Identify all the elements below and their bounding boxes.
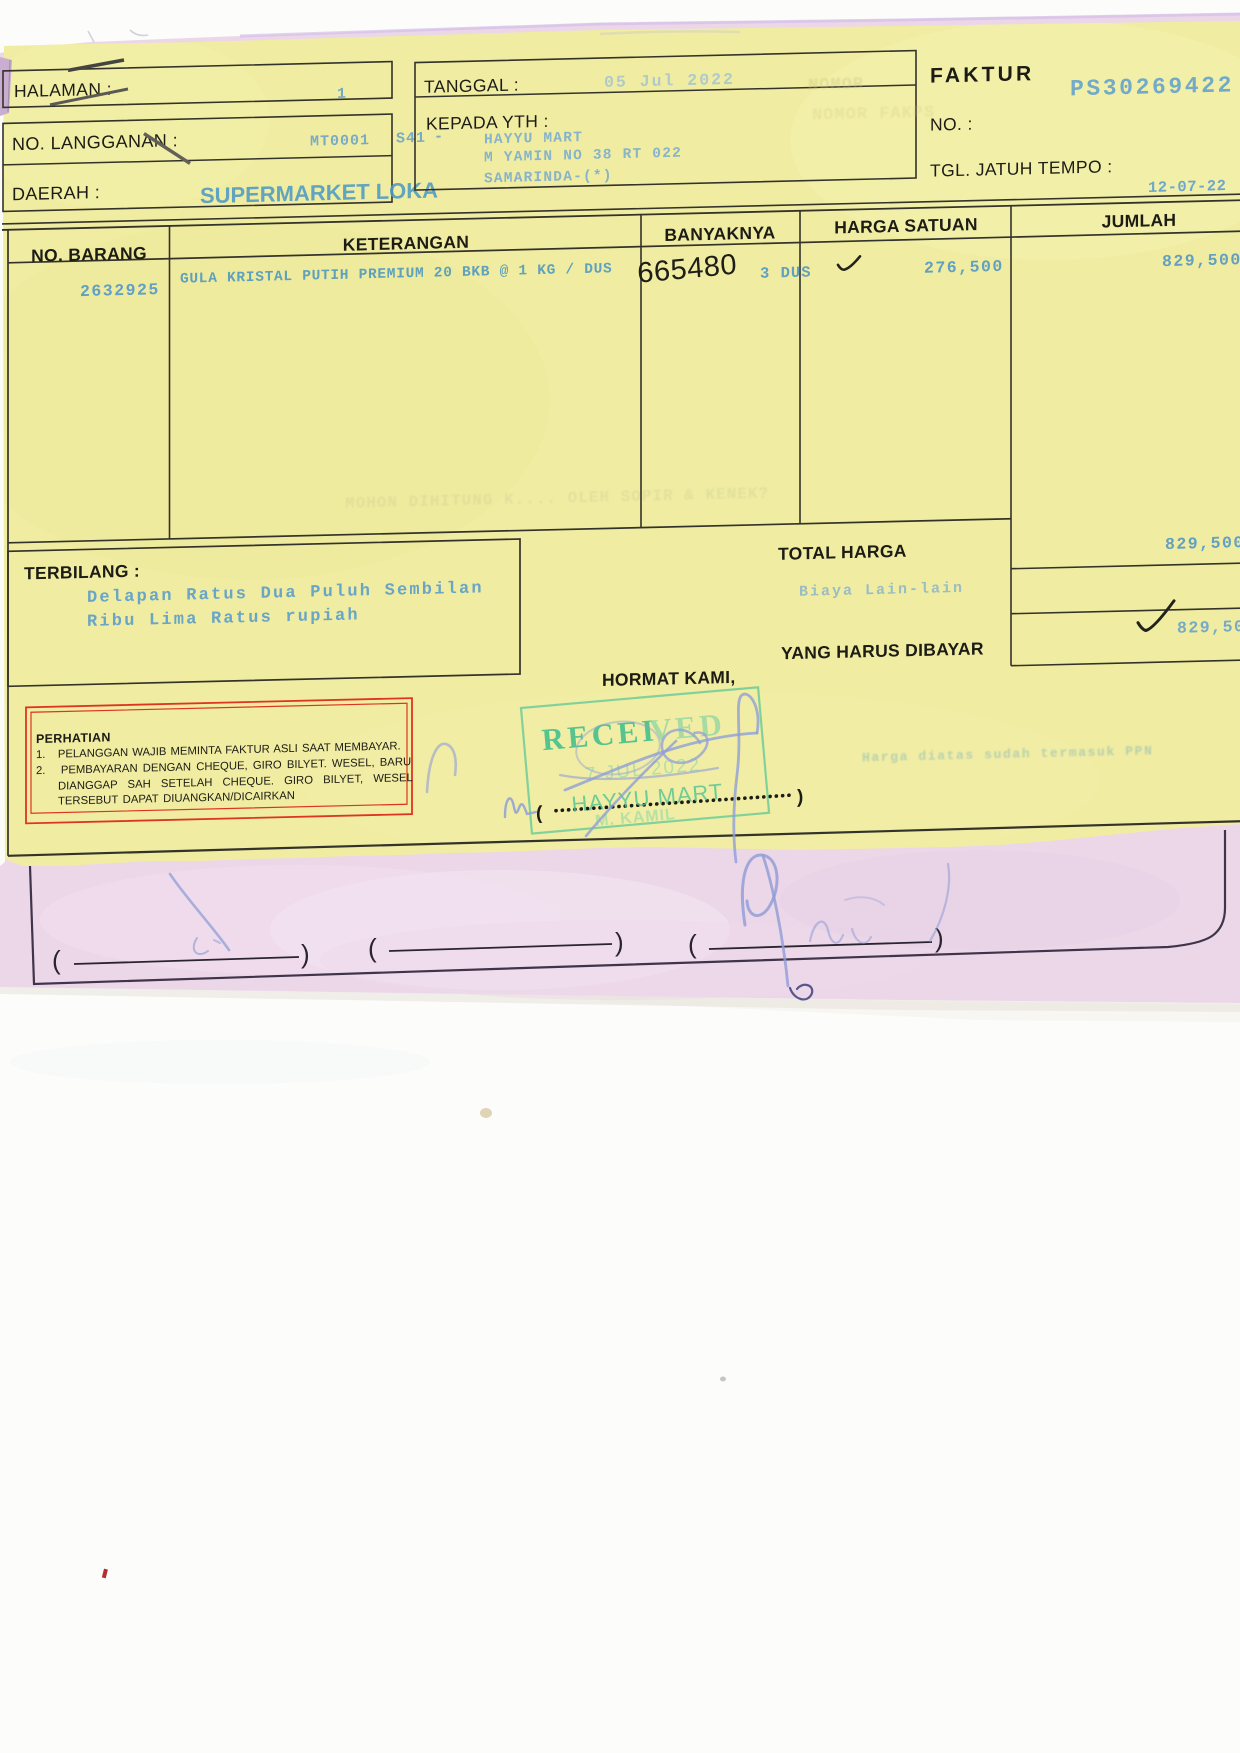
svg-text:NOMOR FAKPS: NOMOR FAKPS xyxy=(812,104,935,126)
svg-text:FAKTUR: FAKTUR xyxy=(930,62,1034,88)
svg-text:NOMOR: NOMOR xyxy=(808,75,864,95)
svg-text:TANGGAL :: TANGGAL : xyxy=(424,75,519,97)
svg-text:12-07-22: 12-07-22 xyxy=(1148,177,1226,197)
svg-text:(: ( xyxy=(52,945,61,975)
svg-text:S41: S41 xyxy=(396,130,426,148)
svg-text:TOTAL HARGA: TOTAL HARGA xyxy=(778,541,907,564)
svg-text:1: 1 xyxy=(337,86,346,103)
svg-text:05 Jul 2022: 05 Jul 2022 xyxy=(604,70,735,92)
svg-text:829,500: 829,500 xyxy=(1177,617,1240,638)
svg-text:): ) xyxy=(301,939,310,969)
svg-text:BANYAKNYA: BANYAKNYA xyxy=(664,222,775,245)
svg-text:DAERAH :: DAERAH : xyxy=(12,182,100,204)
svg-text:(: ( xyxy=(688,929,697,959)
svg-text:PERHATIAN: PERHATIAN xyxy=(36,730,111,746)
svg-text:): ) xyxy=(615,927,624,957)
svg-text:2632925: 2632925 xyxy=(80,280,160,301)
svg-text:276,500: 276,500 xyxy=(924,257,1004,278)
svg-text:(: ( xyxy=(536,803,543,824)
svg-text:JUMLAH: JUMLAH xyxy=(1102,210,1177,232)
svg-text:NO. BARANG: NO. BARANG xyxy=(31,243,147,266)
svg-text:829,500: 829,500 xyxy=(1165,533,1240,554)
svg-text:3 DUS: 3 DUS xyxy=(760,264,812,283)
svg-text:SAMARINDA-(*): SAMARINDA-(*) xyxy=(484,168,613,187)
svg-text:PS30269422: PS30269422 xyxy=(1070,72,1234,102)
svg-text:(: ( xyxy=(368,933,377,963)
svg-text:TERBILANG :: TERBILANG : xyxy=(24,561,140,584)
svg-text:HORMAT KAMI,: HORMAT KAMI, xyxy=(602,667,736,690)
svg-text:): ) xyxy=(797,787,803,808)
svg-text:KETERANGAN: KETERANGAN xyxy=(343,232,469,255)
svg-text:HAYYU MART: HAYYU MART xyxy=(484,130,583,148)
svg-text:NO. :: NO. : xyxy=(930,114,973,135)
svg-text:HALAMAN :: HALAMAN : xyxy=(14,79,112,101)
svg-text:829,500: 829,500 xyxy=(1162,250,1240,271)
svg-text:MT0001: MT0001 xyxy=(310,132,370,150)
svg-text:NO. LANGGANAN :: NO. LANGGANAN : xyxy=(12,130,178,154)
svg-text:HARGA SATUAN: HARGA SATUAN xyxy=(834,214,978,237)
